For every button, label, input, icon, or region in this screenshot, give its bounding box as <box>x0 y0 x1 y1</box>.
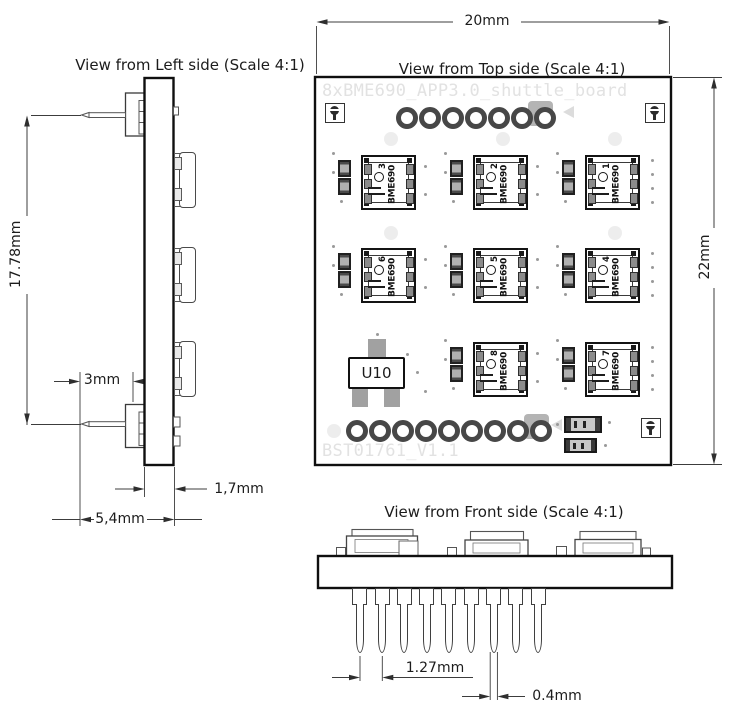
smd-passive <box>562 271 575 288</box>
chip-side-pad <box>364 257 372 268</box>
chip-number-label: 4 <box>602 253 612 265</box>
header-pin-collar <box>531 588 546 605</box>
header-pin-collar <box>352 588 367 605</box>
chip-number-label: 8 <box>490 347 500 359</box>
chip-mark-bar <box>480 187 493 189</box>
chip-number-label: 3 <box>378 160 388 172</box>
header-pin-collar <box>397 588 412 605</box>
sensor-profile-tab <box>174 346 183 359</box>
chip-side-pad <box>406 179 414 190</box>
via-dot <box>444 358 447 361</box>
via-pad-faint <box>608 226 622 240</box>
chip-mark-bar <box>592 286 609 288</box>
via-dot <box>406 353 409 356</box>
smd-passive <box>450 178 463 195</box>
via-dot <box>340 200 343 203</box>
left-view-board <box>82 78 181 465</box>
chip-mark-bar <box>592 374 605 376</box>
chip-corner-dot <box>476 251 481 256</box>
chip-mark-bar <box>480 193 497 195</box>
chip-side-pad <box>518 380 526 391</box>
header-pin-collar <box>464 588 479 605</box>
header-pin-shaft <box>445 604 453 653</box>
u10-component: U10 <box>348 357 405 389</box>
via-dot <box>424 286 427 289</box>
chip-number-label: 7 <box>602 347 612 359</box>
via-pad-faint <box>608 132 622 146</box>
smd-passive <box>338 160 351 177</box>
via-dot <box>536 165 539 168</box>
chip-mark-bar <box>480 280 493 282</box>
via-dot <box>444 339 447 342</box>
header-pin-shaft <box>512 604 520 653</box>
via-dot <box>444 152 447 155</box>
dim-pin-pitch: 1.27mm <box>403 660 467 676</box>
chip-part-label: BME690 <box>500 350 513 394</box>
via-dot <box>332 152 335 155</box>
chip-side-pad <box>518 286 526 297</box>
via-dot <box>424 258 427 261</box>
smd-passive <box>562 365 575 382</box>
chip-side-pad <box>630 179 638 190</box>
sensor-chip: BME6903 <box>361 155 416 210</box>
smd-component-r1 <box>564 416 602 433</box>
chip-part-label: BME690 <box>500 163 513 207</box>
chip-side-pad <box>518 179 526 190</box>
chip-side-pad <box>630 164 638 175</box>
chip-part-label: BME690 <box>612 256 625 300</box>
via-dot <box>332 264 335 267</box>
via-dot <box>536 286 539 289</box>
via-dot <box>556 245 559 248</box>
silkscreen-board-name: 8xBME690_APP3.0_shuttle_board <box>322 81 628 101</box>
chip-side-pad <box>588 351 596 362</box>
via-dot <box>651 280 654 283</box>
via-dot <box>651 294 654 297</box>
top-row-hole <box>534 107 556 129</box>
smd-passive <box>450 253 463 270</box>
header-pin-shaft <box>400 604 408 653</box>
bottom-row-hole <box>392 420 414 442</box>
chip-mark-bar <box>592 280 605 282</box>
chip-side-pad <box>518 272 526 283</box>
chip-pin1-marker <box>598 265 608 275</box>
chip-part-label: BME690 <box>612 350 625 394</box>
via-dot <box>604 444 607 447</box>
chip-number-label: 1 <box>602 160 612 172</box>
chip-part-label: BME690 <box>500 256 513 300</box>
smd-passive <box>450 160 463 177</box>
sensor-chip: BME6904 <box>585 248 640 303</box>
header-pin-shaft <box>467 604 475 653</box>
via-dot <box>651 360 654 363</box>
via-dot <box>651 201 654 204</box>
chip-number-label: 6 <box>378 253 388 265</box>
dim-pin-protrusion: 3mm <box>82 372 122 388</box>
sensor-profile-tab <box>174 188 183 201</box>
bottom-row-hole <box>461 420 483 442</box>
via-dot <box>416 371 419 374</box>
smd-passive <box>450 347 463 364</box>
chip-side-pad <box>588 164 596 175</box>
chip-mark-bar <box>592 380 609 382</box>
chip-mark-bar <box>592 193 609 195</box>
chip-side-pad <box>630 286 638 297</box>
chip-corner-dot <box>631 251 636 256</box>
silkscreen-board-revision: BST01761_V1.1 <box>322 441 459 461</box>
sensor-chip: BME6902 <box>473 155 528 210</box>
via-dot <box>556 264 559 267</box>
header-pin-shaft <box>423 604 431 653</box>
chip-corner-dot <box>588 158 593 163</box>
via-dot <box>424 390 427 393</box>
chip-corner-dot <box>519 158 524 163</box>
bottom-row-hole <box>346 420 368 442</box>
header-pin-shaft <box>490 604 498 653</box>
sensor-profile-tab <box>174 252 183 265</box>
chip-corner-dot <box>407 251 412 256</box>
chip-part-label: BME690 <box>612 163 625 207</box>
chip-side-pad <box>588 257 596 268</box>
dim-pin-width: 0.4mm <box>529 688 585 704</box>
via-dot <box>556 339 559 342</box>
sensor-chip: BME6908 <box>473 342 528 397</box>
chip-number-label: 5 <box>490 253 500 265</box>
chip-corner-dot <box>407 158 412 163</box>
smd-passive <box>562 178 575 195</box>
fiducial-slot <box>328 109 341 111</box>
chip-side-pad <box>630 193 638 204</box>
chip-side-pad <box>630 351 638 362</box>
chip-corner-dot <box>631 345 636 350</box>
chip-corner-dot <box>476 158 481 163</box>
fiducial-stem <box>649 429 652 435</box>
chip-side-pad <box>630 366 638 377</box>
top-row-hole <box>442 107 464 129</box>
via-dot <box>556 358 559 361</box>
fiducial-mark <box>641 418 661 438</box>
chip-pin1-marker <box>374 172 384 182</box>
via-dot <box>424 165 427 168</box>
chip-side-pad <box>518 257 526 268</box>
chip-part-label: BME690 <box>388 256 401 300</box>
chip-corner-dot <box>631 158 636 163</box>
top-row-hole <box>419 107 441 129</box>
dim-board-thickness: 1,7mm <box>211 481 267 497</box>
dim-board-height: 22mm <box>697 233 713 281</box>
chip-pin1-marker <box>598 359 608 369</box>
sensor-chip: BME6905 <box>473 248 528 303</box>
sensor-profile-tab <box>174 283 183 296</box>
bottom-row-hole <box>507 420 529 442</box>
chip-side-pad <box>518 351 526 362</box>
chip-mark-bar <box>368 286 385 288</box>
chip-side-pad <box>406 164 414 175</box>
via-dot <box>452 293 455 296</box>
chip-mark-bar <box>480 286 497 288</box>
fiducial-stem <box>653 114 656 120</box>
chip-side-pad <box>406 286 414 297</box>
chip-side-pad <box>630 380 638 391</box>
chip-side-pad <box>406 257 414 268</box>
chip-mark-bar <box>368 280 381 282</box>
via-dot <box>536 380 539 383</box>
via-dot <box>444 264 447 267</box>
via-dot <box>651 266 654 269</box>
via-dot <box>424 193 427 196</box>
chip-corner-dot <box>364 251 369 256</box>
bottom-row-hole <box>484 420 506 442</box>
smd-component-r2 <box>564 438 597 453</box>
chip-corner-dot <box>364 158 369 163</box>
via-dot <box>608 421 611 424</box>
via-dot <box>340 293 343 296</box>
fiducial-stem <box>333 114 336 120</box>
top-row-hole <box>465 107 487 129</box>
via-dot <box>536 352 539 355</box>
via-dot <box>332 171 335 174</box>
via-dot <box>556 152 559 155</box>
chip-side-pad <box>476 257 484 268</box>
via-dot <box>651 252 654 255</box>
via-dot <box>444 171 447 174</box>
front-view-title: View from Front side (Scale 4:1) <box>373 503 635 521</box>
chip-part-label: BME690 <box>388 163 401 207</box>
left-view-title: View from Left side (Scale 4:1) <box>40 56 340 74</box>
sensor-chip: BME6901 <box>585 155 640 210</box>
via-pad-faint <box>384 226 398 240</box>
bottom-row-hole <box>415 420 437 442</box>
header-pin-collar <box>441 588 456 605</box>
dim-pin-row-span: 17.78mm <box>8 224 24 288</box>
chip-side-pad <box>406 193 414 204</box>
fiducial-mark <box>325 103 345 123</box>
chip-pin1-marker <box>486 172 496 182</box>
chip-mark-bar <box>480 380 497 382</box>
chip-corner-dot <box>588 345 593 350</box>
chip-pin1-marker <box>598 172 608 182</box>
chip-number-label: 2 <box>490 160 500 172</box>
via-dot <box>536 193 539 196</box>
via-dot <box>376 333 379 336</box>
header-pin-collar <box>375 588 390 605</box>
via-pad-faint <box>384 132 398 146</box>
chip-side-pad <box>364 164 372 175</box>
chip-corner-dot <box>519 251 524 256</box>
chip-corner-dot <box>588 251 593 256</box>
chip-side-pad <box>630 272 638 283</box>
chip-mark-bar <box>368 193 385 195</box>
chip-corner-dot <box>476 345 481 350</box>
via-dot <box>536 258 539 261</box>
bottom-row-hole <box>369 420 391 442</box>
top-row-hole <box>511 107 533 129</box>
chip-side-pad <box>518 193 526 204</box>
via-dot <box>444 245 447 248</box>
header-pin-collar <box>486 588 501 605</box>
fiducial-slot <box>644 424 657 426</box>
header-pin-collar <box>508 588 523 605</box>
via-dot <box>556 423 559 426</box>
u10-label: U10 <box>361 364 391 382</box>
chip-mark-bar <box>592 187 605 189</box>
via-dot <box>651 388 654 391</box>
chip-mark-bar <box>368 187 381 189</box>
sensor-profile-tab <box>174 157 183 170</box>
chip-corner-dot <box>519 345 524 350</box>
chip-pin1-marker <box>486 265 496 275</box>
via-dot <box>556 171 559 174</box>
via-dot <box>651 374 654 377</box>
dim-board-width: 20mm <box>455 13 519 29</box>
header-pin-shaft <box>356 604 364 653</box>
header-pin-shaft <box>534 604 542 653</box>
smd-passive <box>338 253 351 270</box>
smd-passive <box>338 178 351 195</box>
smd-passive <box>450 365 463 382</box>
chip-side-pad <box>518 366 526 377</box>
chip-pin1-marker <box>374 265 384 275</box>
chip-side-pad <box>406 272 414 283</box>
chip-side-pad <box>476 351 484 362</box>
technical-drawing-canvas: View from Left side (Scale 4:1) View fro… <box>0 0 750 708</box>
fiducial-mark <box>645 103 665 123</box>
sensor-chip: BME6906 <box>361 248 416 303</box>
smd-passive <box>450 271 463 288</box>
top-row-hole <box>396 107 418 129</box>
via-dot <box>651 159 654 162</box>
smd-passive <box>562 160 575 177</box>
chip-side-pad <box>476 164 484 175</box>
via-pad-faint <box>496 132 510 146</box>
bottom-row-hole <box>438 420 460 442</box>
via-dot <box>651 173 654 176</box>
top-row-hole <box>488 107 510 129</box>
chip-side-pad <box>518 164 526 175</box>
via-dot <box>452 200 455 203</box>
fiducial-slot <box>648 109 661 111</box>
via-dot <box>651 346 654 349</box>
header-pin-collar <box>419 588 434 605</box>
chip-side-pad <box>630 257 638 268</box>
sensor-profile-tab <box>174 377 183 390</box>
smd-passive <box>562 347 575 364</box>
via-dot <box>651 187 654 190</box>
silkscreen-arrow-top <box>563 106 574 118</box>
sensor-chip: BME6907 <box>585 342 640 397</box>
top-view-title: View from Top side (Scale 4:1) <box>381 60 643 78</box>
front-view-board <box>318 530 672 589</box>
smd-passive <box>562 253 575 270</box>
smd-passive <box>338 271 351 288</box>
dim-side-depth-total: 5,4mm <box>94 511 146 527</box>
via-pad-faint <box>327 424 341 438</box>
via-dot <box>564 200 567 203</box>
chip-pin1-marker <box>486 359 496 369</box>
via-dot <box>564 387 567 390</box>
via-dot <box>564 293 567 296</box>
bottom-row-hole <box>530 420 552 442</box>
chip-mark-bar <box>480 374 493 376</box>
via-dot <box>332 245 335 248</box>
via-dot <box>452 387 455 390</box>
header-pin-shaft <box>378 604 386 653</box>
